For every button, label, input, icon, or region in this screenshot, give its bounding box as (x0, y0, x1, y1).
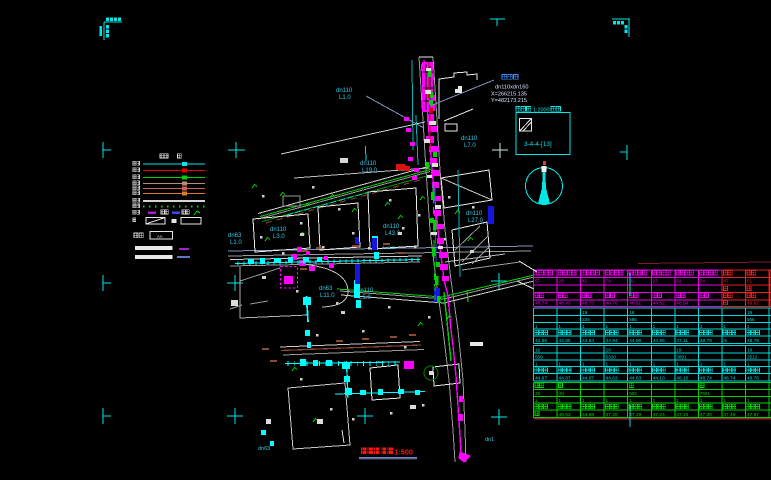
svg-text:23: 23 (653, 279, 659, 284)
svg-text:44.96: 44.96 (535, 338, 547, 344)
svg-text:m: m (723, 339, 727, 344)
svg-text:47.49: 47.49 (723, 412, 735, 418)
svg-text:48.51: 48.51 (629, 301, 641, 307)
svg-text:57: 57 (535, 279, 541, 284)
svg-text:79: 79 (606, 279, 612, 284)
svg-text:19: 19 (606, 347, 612, 352)
svg-text:44.63: 44.63 (629, 375, 641, 381)
svg-text:19: 19 (582, 310, 588, 315)
svg-text:L=2.0: L=2.0 (383, 245, 395, 250)
svg-text:3-4-4-[13]: 3-4-4-[13] (524, 141, 552, 148)
svg-text:L1.0: L1.0 (230, 240, 242, 246)
svg-text:19: 19 (747, 347, 753, 352)
svg-text:47: 47 (723, 279, 729, 284)
svg-text:48.10: 48.10 (676, 375, 688, 381)
svg-text:19: 19 (747, 310, 753, 315)
svg-text:48.74: 48.74 (535, 301, 547, 307)
svg-text:48.43: 48.43 (559, 301, 571, 307)
svg-text:44.07: 44.07 (582, 375, 594, 381)
svg-text:[0]: [0] (559, 391, 564, 396)
svg-text:L11.0: L11.0 (320, 293, 335, 299)
svg-text:dn110: dn110 (336, 88, 353, 94)
svg-text:44.10: 44.10 (653, 375, 665, 381)
svg-text:Y=482173.215: Y=482173.215 (491, 98, 527, 104)
svg-text:dn110: dn110 (461, 136, 478, 142)
svg-text:28: 28 (559, 279, 565, 284)
svg-text:48.79: 48.79 (700, 338, 712, 344)
svg-text:dn110xdn160: dn110xdn160 (495, 85, 529, 91)
svg-text:5310: 5310 (606, 355, 617, 360)
svg-text:dn110: dn110 (360, 161, 377, 167)
svg-text:556: 556 (747, 317, 755, 322)
svg-text:48.76: 48.76 (606, 301, 618, 307)
svg-text:dn110: dn110 (466, 211, 483, 217)
svg-text:585: 585 (629, 317, 637, 322)
svg-text:502: 502 (629, 391, 637, 396)
svg-text:44.87: 44.87 (559, 375, 571, 381)
svg-text:47.11: 47.11 (676, 338, 688, 344)
svg-text:44.94: 44.94 (606, 338, 618, 344)
svg-text:47.24: 47.24 (653, 412, 665, 418)
svg-text:dn63: dn63 (258, 446, 270, 452)
svg-text:3891: 3891 (676, 355, 687, 360)
svg-text:dn110: dn110 (383, 224, 400, 230)
svg-text:44.84: 44.84 (582, 338, 594, 344)
svg-text:L3.0: L3.0 (273, 234, 285, 240)
svg-text:44.68: 44.68 (582, 412, 594, 418)
svg-text:L19.0: L19.0 (362, 168, 378, 174)
svg-text:19: 19 (535, 347, 541, 352)
svg-text:44.96: 44.96 (629, 338, 641, 344)
svg-text:234: 234 (582, 317, 590, 322)
svg-text:47.28: 47.28 (606, 412, 618, 418)
svg-text:L5.0: L5.0 (359, 295, 371, 301)
svg-text:48.79: 48.79 (747, 338, 759, 344)
svg-text:44.95: 44.95 (653, 338, 665, 344)
svg-text:19: 19 (676, 347, 682, 352)
svg-text:L1.0: L1.0 (339, 95, 351, 101)
svg-text:47.39: 47.39 (700, 412, 712, 418)
svg-text:49.62: 49.62 (747, 301, 759, 307)
svg-text:48.54: 48.54 (676, 301, 688, 307)
svg-text:47.19: 47.19 (629, 412, 641, 418)
svg-text:48.74: 48.74 (723, 375, 735, 381)
svg-text:44.52: 44.52 (653, 301, 665, 307)
svg-text:47.34: 47.34 (676, 412, 688, 418)
svg-text:47.67: 47.67 (747, 412, 759, 418)
svg-text:L27.0: L27.0 (468, 218, 484, 224)
svg-text:44.95: 44.95 (559, 338, 571, 344)
svg-text:dn110: dn110 (270, 227, 287, 233)
svg-text:48.73: 48.73 (582, 301, 594, 307)
svg-text:dn1: dn1 (485, 437, 494, 443)
svg-text:2512: 2512 (747, 355, 758, 360)
svg-text:7621: 7621 (700, 391, 711, 396)
svg-text:44.63: 44.63 (606, 375, 618, 381)
svg-text:1:500: 1:500 (395, 447, 413, 456)
svg-text:dn110: dn110 (357, 288, 374, 294)
svg-text:48.74: 48.74 (700, 375, 712, 381)
svg-text:dn63: dn63 (319, 286, 333, 292)
svg-text:51: 51 (747, 279, 753, 284)
svg-text:24: 24 (700, 279, 706, 284)
svg-text:42: 42 (582, 279, 588, 284)
svg-text:L7.0: L7.0 (464, 143, 476, 149)
svg-text:559: 559 (535, 355, 543, 360)
svg-text:46.63: 46.63 (559, 412, 571, 418)
svg-text:19: 19 (629, 310, 635, 315)
svg-text:52: 52 (676, 279, 682, 284)
svg-text:25: 25 (535, 391, 541, 396)
svg-text:48.76: 48.76 (747, 375, 759, 381)
svg-text:AA: AA (157, 234, 163, 239)
svg-text:X=266215.135: X=266215.135 (491, 91, 527, 97)
svg-text:44.87: 44.87 (535, 375, 547, 381)
svg-text:dn63: dn63 (228, 233, 242, 239)
